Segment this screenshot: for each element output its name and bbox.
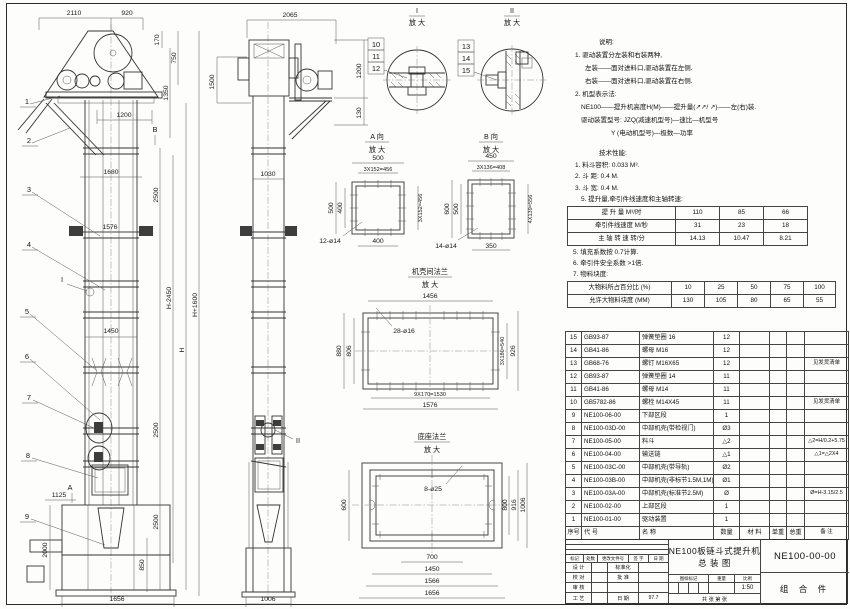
table-cell: [787, 436, 805, 449]
table-cell: [805, 332, 849, 345]
performance-item: 5. 提升量,牵引件线速度和主轴转速:: [569, 194, 845, 206]
table-row: 7NE100-05-00料斗△2△2=H/0.2+5.75: [566, 436, 849, 449]
weight-cell: [709, 583, 735, 594]
table-cell: NE100-03C-00: [582, 462, 640, 475]
table-row: 10GB5782-86螺栓 M14X4511见发货清单: [566, 397, 849, 410]
table-cell: 14.13: [676, 233, 720, 246]
table-cell: [740, 488, 770, 501]
performance-block: 技术性能: 1. 料斗容积: 0.033 M³. 2. 斗 距: 0.4 M. …: [569, 148, 845, 206]
detail-subtitle: 放 大: [504, 18, 520, 27]
dim-label: 1656: [109, 596, 124, 603]
table-cell: 14: [566, 345, 582, 358]
performance-item: 5. 填充系数按 0.7计算.: [573, 247, 843, 258]
table-cell: [805, 501, 849, 514]
table-cell: 7: [566, 436, 582, 449]
dim-label: 1200: [356, 63, 363, 78]
table-cell: 下部区段: [640, 410, 714, 423]
rev-col-header: 日 期: [649, 555, 669, 563]
table-cell: [787, 371, 805, 384]
leader-label: 6: [25, 352, 29, 361]
table-cell: [770, 397, 787, 410]
dim-label: 3X152=456: [364, 167, 393, 173]
table-row: 2NE100-02-00上部区段1: [566, 501, 849, 514]
table-cell: [770, 410, 787, 423]
table-cell: [805, 423, 849, 436]
dim-label: 400: [337, 202, 344, 214]
dim-label: 1006: [260, 596, 275, 603]
table-row: 大物料所占百分比 (%)10255075100: [568, 282, 836, 295]
dim-label: 400: [372, 238, 384, 245]
dim-label: 2065: [282, 12, 297, 19]
right-panel: 说明: 1. 驱动装置分左装和右装两种, 左装——面对进料口,驱动装置在左侧. …: [563, 0, 848, 609]
scale-value: 1:50: [735, 583, 761, 594]
table-cell: 提 升 量 M³/时: [568, 207, 676, 220]
table-row: 3NE100-03A-00中部机壳(标准节2.5M)ØØ=H-3.15/2.5: [566, 488, 849, 501]
view-title: B 向: [484, 132, 498, 141]
table-cell: 数量: [714, 527, 740, 540]
table-cell: [770, 345, 787, 358]
table-cell: NE100-03A-00: [582, 488, 640, 501]
dim-label: 916: [511, 499, 518, 511]
table-cell: [787, 358, 805, 371]
stamp-cell: [669, 583, 679, 594]
dim-label: 800: [502, 499, 509, 511]
table-row: 14GB41-86螺母 M1612: [566, 345, 849, 358]
dim-label: 8-ø25: [424, 486, 442, 493]
table-cell: 12: [566, 371, 582, 384]
table-cell: 材 料: [740, 527, 770, 540]
leader-label: 13: [462, 42, 470, 51]
leader-label: 2: [27, 136, 31, 145]
performance-item: 3. 斗 宽: 0.4 M.: [569, 183, 845, 195]
leader-label: 14: [462, 54, 470, 63]
table-cell: 中部机壳(非标节1.5M,1M): [640, 475, 714, 488]
view-subtitle: 放 大: [369, 145, 385, 154]
stamp-header: 重量: [709, 575, 735, 583]
leader-label: 3: [27, 185, 31, 194]
dim-label: 2000: [42, 542, 49, 557]
dim-label: H-2450: [166, 287, 173, 310]
table-cell: 12: [714, 358, 740, 371]
notes-block-2: 5. 填充系数按 0.7计算. 6. 牵引件安全系数 >1倍. 7. 物料块度:: [573, 247, 843, 280]
dim-label: 500: [372, 155, 384, 162]
table-cell: 65: [771, 295, 804, 308]
leader-label: 10: [372, 40, 380, 49]
table-cell: 螺母 M16: [640, 345, 714, 358]
sig-label: 审 核: [566, 583, 592, 593]
drawing-title: NE100板链斗式提升机 总 装 图: [669, 540, 761, 575]
table-cell: [787, 514, 805, 527]
table-cell: GB41-86: [582, 384, 640, 397]
table-row: 5NE100-03C-00中部机壳(带导轨)Ø2: [566, 462, 849, 475]
sig-cell: [592, 573, 608, 583]
table-cell: [805, 384, 849, 397]
table-cell: [805, 410, 849, 423]
table-cell: 总重: [787, 527, 805, 540]
table-cell: [805, 345, 849, 358]
leader-label: 1: [25, 97, 29, 106]
table-cell: 31: [676, 220, 720, 233]
table-cell: [805, 462, 849, 475]
table-cell: 9: [566, 410, 582, 423]
dim-label: 1350: [163, 85, 170, 100]
table-cell: Ø=H-3.15/2.5: [805, 488, 849, 501]
table-cell: 牵引件线速度 M/秒: [568, 220, 676, 233]
performance-heading: 技术性能:: [569, 148, 845, 160]
table-cell: [740, 345, 770, 358]
side-view-dimensions: 2065 1500 1200 130 1030 1006 II: [209, 12, 368, 607]
table-cell: 单重: [770, 527, 787, 540]
drawing-number: NE100-00-00: [761, 540, 849, 573]
dim-label: 1566: [424, 578, 439, 585]
detail-subtitle: 放 大: [409, 18, 425, 27]
dim-label: 1450: [424, 566, 439, 573]
table-cell: [740, 371, 770, 384]
sig-label: 校 对: [566, 573, 592, 583]
table-cell: [787, 332, 805, 345]
dim-label: 750: [171, 52, 178, 64]
table-cell: [770, 371, 787, 384]
rev-col-header: 标记: [566, 555, 584, 563]
dim-label: 1450: [103, 328, 118, 335]
table-row: 允许大物料块度 (MM)130105806555: [568, 295, 836, 308]
performance-item: 1. 料斗容积: 0.033 M³.: [569, 160, 845, 172]
table-cell: 序号: [566, 527, 582, 540]
table-cell: NE100-03B-00: [582, 475, 640, 488]
table-row: 主 轴 转 速 转/分14.1310.478.21: [568, 233, 808, 246]
sig-cell: [592, 583, 608, 593]
detail-subtitle: 放 大: [424, 445, 440, 454]
table-row: 牵引件线速度 M/秒312318: [568, 220, 808, 233]
dim-label: 1030: [260, 171, 275, 178]
table-cell: 55: [804, 295, 836, 308]
table-cell: [787, 423, 805, 436]
dim-label: 1576: [422, 402, 437, 409]
table-cell: [787, 384, 805, 397]
table-cell: 1: [714, 514, 740, 527]
table-cell: △1: [714, 449, 740, 462]
detail-title: I: [416, 6, 418, 15]
dim-label: 2500: [153, 514, 160, 529]
detail-view-1: I 放 大 10 11 12: [368, 6, 451, 114]
part-type: 组 合 件: [761, 573, 849, 605]
notes-heading: 说明:: [569, 36, 845, 49]
table-cell: 13: [566, 358, 582, 371]
dim-label: 1500: [209, 74, 216, 89]
table-cell: 25: [705, 282, 738, 295]
dim-label: 350: [485, 243, 497, 250]
table-cell: 100: [804, 282, 836, 295]
performance-item: 7. 物料块度:: [573, 269, 843, 280]
section-marker-b: B: [152, 125, 157, 134]
table-cell: [787, 462, 805, 475]
stamp-header: 图样标记: [669, 575, 709, 583]
table-cell: [787, 410, 805, 423]
table-row: 13GB68-76螺钉 M16X6512见发货清单: [566, 358, 849, 371]
leader-label: 12: [372, 64, 380, 73]
dim-label: 4X139=556: [528, 195, 534, 224]
stamp-cell: [679, 583, 689, 594]
table-cell: 2: [566, 501, 582, 514]
dim-label: 12-ø14: [319, 238, 341, 245]
table-cell: 8.21: [764, 233, 808, 246]
sig-cell: [639, 583, 669, 593]
dim-label: 850: [139, 559, 146, 571]
table-cell: [787, 475, 805, 488]
dim-label: 1125: [52, 492, 67, 499]
dim-label: 1006: [520, 497, 527, 512]
table-cell: 代 号: [582, 527, 640, 540]
table-cell: 23: [720, 220, 764, 233]
table-cell: [787, 501, 805, 514]
sig-label: 标准化: [608, 563, 639, 573]
title-block: 标记 处数 更改文件号 签 字 日 期 设 计 标准化 校 对 批 准 审 核 …: [565, 539, 848, 604]
leader-label: 11: [372, 52, 380, 61]
table-cell: 18: [764, 220, 808, 233]
dim-label: 2500: [153, 187, 160, 202]
table-cell: 1: [566, 514, 582, 527]
table-cell: [740, 358, 770, 371]
rev-col-header: 签 字: [629, 555, 649, 563]
note-line: NE100——提升机高度H(M)——提升量(↗↗/ ↗)——左(右)装.: [569, 101, 845, 114]
table-cell: [770, 423, 787, 436]
table-cell: [740, 332, 770, 345]
table-cell: [805, 371, 849, 384]
dim-label: 2500: [153, 422, 160, 437]
dim-label: 1576: [102, 224, 117, 231]
note-line: 1. 驱动装置分左装和右装两种,: [569, 49, 845, 62]
dim-label: 14-ø14: [435, 243, 457, 250]
dim-label: 920: [121, 10, 133, 17]
table-cell: [770, 436, 787, 449]
dim-label: 600: [444, 203, 451, 215]
table-cell: 11: [714, 384, 740, 397]
table-cell: 6: [566, 449, 582, 462]
table-cell: 105: [705, 295, 738, 308]
table-cell: 主 轴 转 速 转/分: [568, 233, 676, 246]
table-cell: 允许大物料块度 (MM): [568, 295, 672, 308]
dim-label: 1680: [103, 169, 118, 176]
table-cell: 螺钉 M16X65: [640, 358, 714, 371]
table-row: 9NE100-06-00下部区段1: [566, 410, 849, 423]
dim-label: 1656: [424, 590, 439, 597]
table-cell: GB93-87: [582, 371, 640, 384]
dim-label: H: [179, 347, 186, 352]
table-cell: GB93-87: [582, 332, 640, 345]
drawing-area: 2110 920 170 750 1350 1200 1680 1576 145…: [0, 0, 563, 609]
table-cell: 80: [738, 295, 771, 308]
dim-label: 500: [328, 202, 335, 214]
drawing-title-line2: 总 装 图: [698, 557, 731, 569]
sig-cell: [639, 563, 669, 573]
table-cell: [770, 384, 787, 397]
section-marker-a: A: [67, 483, 72, 492]
sig-cell: [639, 573, 669, 583]
table-cell: 10: [566, 397, 582, 410]
table-cell: [740, 462, 770, 475]
table-cell: Ø: [714, 488, 740, 501]
view-title: A 向: [370, 132, 384, 141]
detail-marker-i: I: [61, 275, 63, 284]
table-cell: 弹簧垫圈 16: [640, 332, 714, 345]
detail-view-2: II 放 大 13 14 15: [458, 6, 547, 115]
detail-marker-ii: II: [296, 436, 300, 445]
table-row: 11GB41-86螺母 M1411: [566, 384, 849, 397]
detail-title: II: [510, 6, 514, 15]
note-line: 2. 机型表示法:: [569, 88, 845, 101]
detail-title: 机壳间法兰: [412, 267, 448, 276]
table-cell: [740, 475, 770, 488]
table-cell: 10: [672, 282, 705, 295]
table-cell: 驱动装置: [640, 514, 714, 527]
table-cell: 中部机壳(标准节2.5M): [640, 488, 714, 501]
sig-cell: [592, 563, 608, 573]
table-cell: 料斗: [640, 436, 714, 449]
table-row: 15GB93-87弹簧垫圈 1612: [566, 332, 849, 345]
table-cell: [770, 332, 787, 345]
table-cell: 名 称: [640, 527, 714, 540]
detail-title: 底座法兰: [418, 432, 447, 441]
note-line: 右装——面对进料口,驱动装置在右侧.: [569, 75, 845, 88]
dim-label: 3X152=456: [418, 194, 424, 223]
table-cell: 上部区段: [640, 501, 714, 514]
table-cell: [770, 462, 787, 475]
capacity-speed-table: 提 升 量 M³/时1108566牵引件线速度 M/秒312318主 轴 转 速…: [567, 206, 808, 246]
table-cell: [740, 410, 770, 423]
table-cell: 中部机壳(带检视门): [640, 423, 714, 436]
table-cell: [740, 514, 770, 527]
table-cell: 输送链: [640, 449, 714, 462]
table-cell: [770, 514, 787, 527]
table-cell: NE100-06-00: [582, 410, 640, 423]
table-cell: 5: [566, 462, 582, 475]
note-line: Y (电动机型号)—极数—功率: [569, 127, 845, 140]
table-cell: [740, 384, 770, 397]
table-cell: 螺母 M14: [640, 384, 714, 397]
table-cell: 弹簧垫圈 14: [640, 371, 714, 384]
table-cell: 66: [764, 207, 808, 220]
table-row: 提 升 量 M³/时1108566: [568, 207, 808, 220]
detail-subtitle: 放 大: [422, 280, 438, 289]
side-view-linework: [238, 22, 332, 600]
stamp-header: 比例: [735, 575, 761, 583]
table-cell: 4: [566, 475, 582, 488]
table-cell: 50: [738, 282, 771, 295]
table-cell: [805, 475, 849, 488]
table-cell: [740, 397, 770, 410]
dim-label: 880: [336, 345, 343, 357]
sig-label: 设 计: [566, 563, 592, 573]
date-value: 97.7: [639, 593, 669, 603]
table-cell: 螺栓 M14X45: [640, 397, 714, 410]
leader-label: 4: [27, 240, 31, 249]
table-cell: [787, 345, 805, 358]
table-cell: 11: [714, 371, 740, 384]
table-cell: △2: [714, 436, 740, 449]
dim-label: 1456: [422, 293, 437, 300]
table-cell: [805, 514, 849, 527]
table-row: 序号代 号名 称数量材 料单重总重备 注: [566, 527, 849, 540]
drawing-title-line1: NE100板链斗式提升机: [669, 545, 760, 557]
table-cell: 10.47: [720, 233, 764, 246]
table-cell: [740, 423, 770, 436]
table-cell: Ø1: [714, 475, 740, 488]
table-cell: 11: [566, 384, 582, 397]
table-cell: 110: [676, 207, 720, 220]
leader-label: 15: [462, 66, 470, 75]
view-b: B 向 放 大 450 3X136=408 600 500 4X139=556 …: [435, 132, 534, 250]
table-cell: Ø2: [714, 462, 740, 475]
casing-flange-detail: 机壳间法兰 放 大 1456 28-ø16 880 806 3X180=540 …: [336, 267, 518, 409]
table-row: 12GB93-87弹簧垫圈 1411: [566, 371, 849, 384]
table-cell: 3: [566, 488, 582, 501]
leader-label: 7: [27, 393, 31, 402]
table-cell: GB41-86: [582, 345, 640, 358]
table-row: 1NE100-01-00驱动装置1: [566, 514, 849, 527]
view-a: A 向 放 大 500 3X152=456 500 400 3X152=456 …: [319, 132, 424, 246]
sig-label: 批 准: [608, 573, 639, 583]
dim-label: 9X170=1530: [414, 392, 446, 398]
table-cell: [787, 488, 805, 501]
base-flange-detail: 底座法兰 放 大 8-ø25 600 800 916: [341, 432, 527, 598]
table-cell: NE100-02-00: [582, 501, 640, 514]
dim-label: 3X136=408: [477, 165, 506, 171]
table-cell: NE100-04-00: [582, 449, 640, 462]
table-cell: [770, 449, 787, 462]
table-cell: 12: [714, 345, 740, 358]
table-cell: 75: [771, 282, 804, 295]
dim-label: 806: [346, 345, 353, 357]
table-cell: [740, 501, 770, 514]
dim-label: 600: [341, 499, 348, 511]
rev-col-header: 处数: [584, 555, 598, 563]
note-line: 驱动装置型号: JZQ(减速机型号)—速比—机型号: [569, 114, 845, 127]
dim-label: 3X180=540: [500, 337, 506, 366]
table-cell: [770, 501, 787, 514]
table-cell: 85: [720, 207, 764, 220]
leader-label: 9: [25, 512, 29, 521]
table-cell: 130: [672, 295, 705, 308]
drawing-sheet: 2110 920 170 750 1350 1200 1680 1576 145…: [0, 0, 850, 609]
sig-cell: [592, 593, 608, 603]
table-cell: [740, 449, 770, 462]
dim-label: 700: [426, 554, 438, 561]
table-cell: NE100-03D-00: [582, 423, 640, 436]
table-cell: 1: [714, 501, 740, 514]
sig-label: 工 艺: [566, 593, 592, 603]
dim-label: 170: [154, 34, 161, 46]
table-cell: GB68-76: [582, 358, 640, 371]
dim-label: 926: [510, 345, 517, 357]
notes-block: 说明: 1. 驱动装置分左装和右装两种, 左装——面对进料口,驱动装置在左侧. …: [569, 36, 845, 140]
table-cell: △1=△2X4: [805, 449, 849, 462]
table-cell: [787, 397, 805, 410]
stamp-cell: [689, 583, 699, 594]
table-cell: GB5782-86: [582, 397, 640, 410]
dim-label: 1200: [116, 112, 131, 119]
note-line: 左装——面对进料口,驱动装置在左侧.: [569, 62, 845, 75]
leader-label: 8: [26, 451, 30, 460]
table-cell: [787, 449, 805, 462]
performance-item: 6. 牵引件安全系数 >1倍.: [573, 258, 843, 269]
table-cell: NE100-01-00: [582, 514, 640, 527]
table-row: 6NE100-04-00输送链△1△1=△2X4: [566, 449, 849, 462]
table-cell: [740, 436, 770, 449]
table-cell: 15: [566, 332, 582, 345]
table-cell: △2=H/0.2+5.75: [805, 436, 849, 449]
table-cell: 12: [714, 332, 740, 345]
table-cell: 大物料所占百分比 (%): [568, 282, 672, 295]
